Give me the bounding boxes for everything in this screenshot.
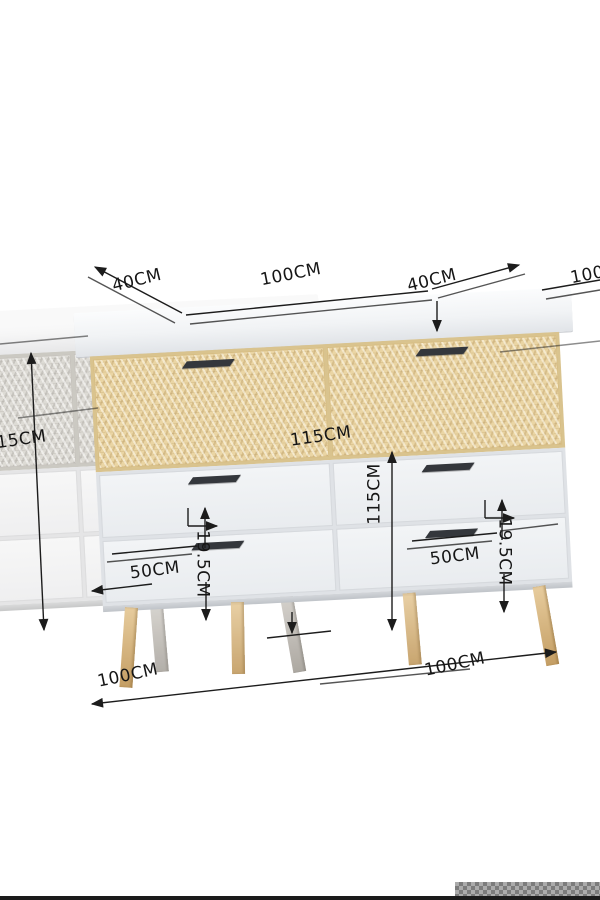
- dim-label-top-width: 100CM: [259, 261, 323, 289]
- drawer: [99, 463, 332, 537]
- drawer-handle: [421, 462, 474, 472]
- cabinet-leg: [280, 592, 307, 673]
- dim-label-depth-right: 40CM: [406, 267, 459, 296]
- dim-label-depth-left: 40CM: [111, 267, 164, 296]
- drawer-handle: [415, 347, 468, 357]
- dim-label-drawer-height-left: 19.5CM: [194, 530, 211, 597]
- watermark-checker-strip: [455, 882, 600, 897]
- product-scene: 40CM 100CM 40CM 100CM 115CM 115CM 115CM …: [0, 0, 600, 900]
- drawer-handle: [425, 528, 478, 538]
- rattan-drawer-left: [0, 354, 76, 476]
- rattan-drawer-left: [93, 347, 329, 469]
- dim-label-top-width-clipped: 100CM: [569, 259, 600, 287]
- drawer-handle: [182, 359, 235, 369]
- cabinet-leg: [231, 602, 245, 674]
- drawer-handle: [188, 475, 241, 485]
- drawer: [0, 535, 83, 609]
- rattan-drawer-right: [326, 335, 562, 457]
- dim-label-height-vertical: 115CM: [367, 463, 384, 525]
- bottom-border-line: [0, 896, 600, 900]
- drawer: [0, 470, 79, 544]
- dim-label-drawer-height-right: 19.5CM: [496, 518, 513, 585]
- cabinet-leg: [403, 592, 422, 665]
- cabinet-leg: [533, 585, 560, 666]
- dim-label-bottom-width: 100CM: [423, 650, 487, 679]
